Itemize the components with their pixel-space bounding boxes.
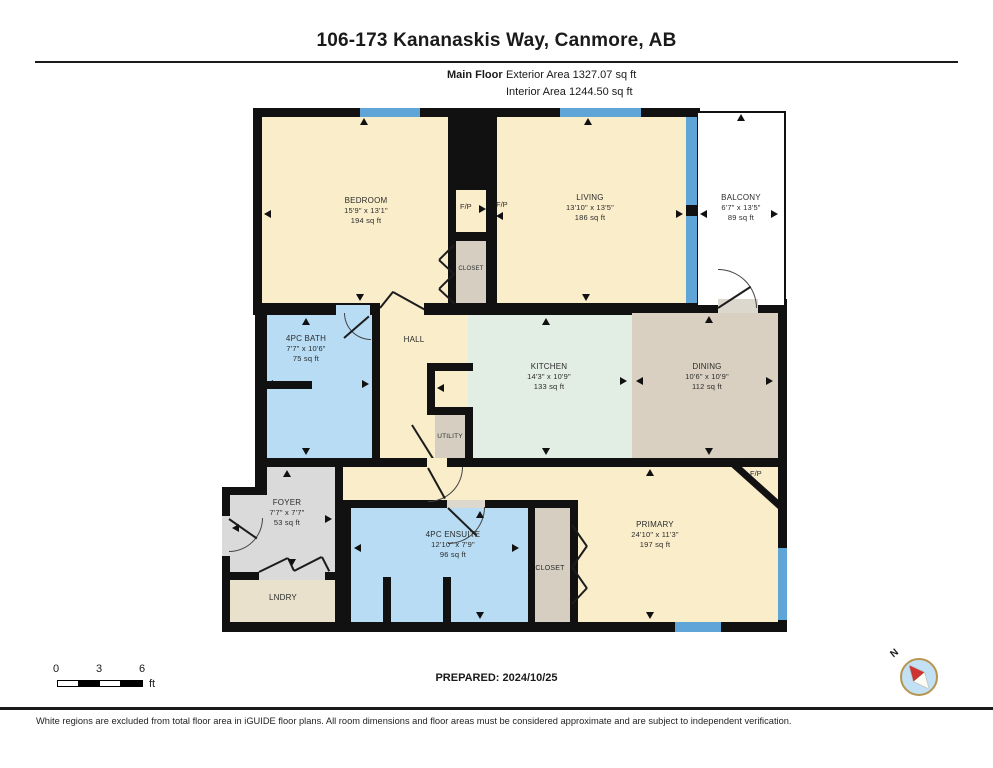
dimension-arrow-icon	[584, 118, 592, 125]
wall	[443, 577, 451, 622]
dimension-arrow-icon	[232, 524, 239, 532]
dimension-arrow-icon	[302, 448, 310, 455]
footer-divider	[0, 707, 993, 710]
room-bath-label: 4PC BATH7'7" x 10'6"75 sq ft	[246, 334, 366, 364]
room-living-label: LIVING13'10" x 13'5"186 sq ft	[530, 193, 650, 223]
room-ensuite-label: 4PC ENSUITE12'10" x 7'9"96 sq ft	[393, 530, 513, 560]
prepared-date: PREPARED: 2024/10/25	[0, 672, 993, 684]
dimension-arrow-icon	[512, 544, 519, 552]
dimension-arrow-icon	[356, 294, 364, 301]
door-opening	[259, 572, 325, 580]
dimension-arrow-icon	[636, 377, 643, 385]
dimension-arrow-icon	[479, 205, 486, 213]
exterior-area: Exterior Area 1327.07 sq ft	[506, 69, 636, 81]
room-kitchen-label: KITCHEN14'3" x 10'9"133 sq ft	[489, 362, 609, 392]
room-balcony-label: BALCONY6'7" x 13'5"89 sq ft	[691, 193, 791, 223]
wall	[383, 577, 391, 622]
dimension-arrow-icon	[302, 318, 310, 325]
room-hall-label: HALL	[384, 335, 444, 345]
wall	[222, 572, 259, 580]
dimension-arrow-icon	[266, 380, 273, 388]
fireplace-bedroom-label: F/P	[460, 202, 472, 211]
window	[778, 548, 787, 620]
floor-label: Main Floor	[447, 69, 503, 81]
room-foyer-label: FOYER7'7" x 7'7"53 sq ft	[227, 498, 347, 528]
dimension-arrow-icon	[700, 210, 707, 218]
dimension-arrow-icon	[325, 515, 332, 523]
dimension-arrow-icon	[646, 469, 654, 476]
fireplace-living-label: F/P	[496, 200, 508, 209]
dimension-arrow-icon	[766, 377, 773, 385]
window	[675, 622, 721, 632]
dimension-arrow-icon	[646, 612, 654, 619]
dimension-arrow-icon	[582, 294, 590, 301]
room-bedroom-closet-label: CLOSET	[446, 266, 496, 274]
dimension-arrow-icon	[496, 212, 503, 220]
dimension-arrow-icon	[542, 318, 550, 325]
dimension-arrow-icon	[676, 210, 683, 218]
floorplan-page: 106-173 Kananaskis Way, Canmore, AB Main…	[0, 0, 993, 768]
door-opening	[427, 458, 447, 467]
dimension-arrow-icon	[360, 118, 368, 125]
dimension-arrow-icon	[288, 559, 296, 566]
room-dining-label: DINING10'6" x 10'9"112 sq ft	[647, 362, 767, 392]
dimension-arrow-icon	[705, 448, 713, 455]
wall	[325, 572, 343, 580]
dimension-arrow-icon	[771, 210, 778, 218]
interior-area: Interior Area 1244.50 sq ft	[506, 86, 633, 98]
compass-north-label: N	[888, 647, 901, 660]
dimension-arrow-icon	[705, 316, 713, 323]
disclaimer-text: White regions are excluded from total fl…	[36, 716, 966, 726]
dimension-arrow-icon	[620, 377, 627, 385]
dimension-arrow-icon	[354, 544, 361, 552]
fireplace-primary-label: F/P	[750, 469, 762, 478]
page-title: 106-173 Kananaskis Way, Canmore, AB	[0, 30, 993, 52]
dimension-arrow-icon	[437, 384, 444, 392]
room-bedroom-label: BEDROOM15'9" x 13'1"194 sq ft	[306, 196, 426, 226]
window	[360, 108, 420, 117]
room-utility-label: UTILITY	[420, 433, 480, 441]
dimension-arrow-icon	[283, 470, 291, 477]
room-ensuite-fill	[351, 508, 528, 622]
dimension-arrow-icon	[737, 114, 745, 121]
wall	[570, 500, 578, 526]
header-divider	[35, 61, 958, 63]
room-primary-closet-label: CLOSET	[520, 564, 580, 573]
room-primary-label: PRIMARY24'10" x 11'3"197 sq ft	[595, 520, 715, 550]
wall	[427, 363, 435, 415]
room-laundry-label: LNDRY	[243, 593, 323, 603]
dimension-arrow-icon	[362, 380, 369, 388]
wall	[485, 500, 578, 508]
window	[560, 108, 641, 117]
dimension-arrow-icon	[542, 448, 550, 455]
dimension-arrow-icon	[264, 210, 271, 218]
dimension-arrow-icon	[476, 612, 484, 619]
dimension-arrow-icon	[476, 511, 484, 518]
